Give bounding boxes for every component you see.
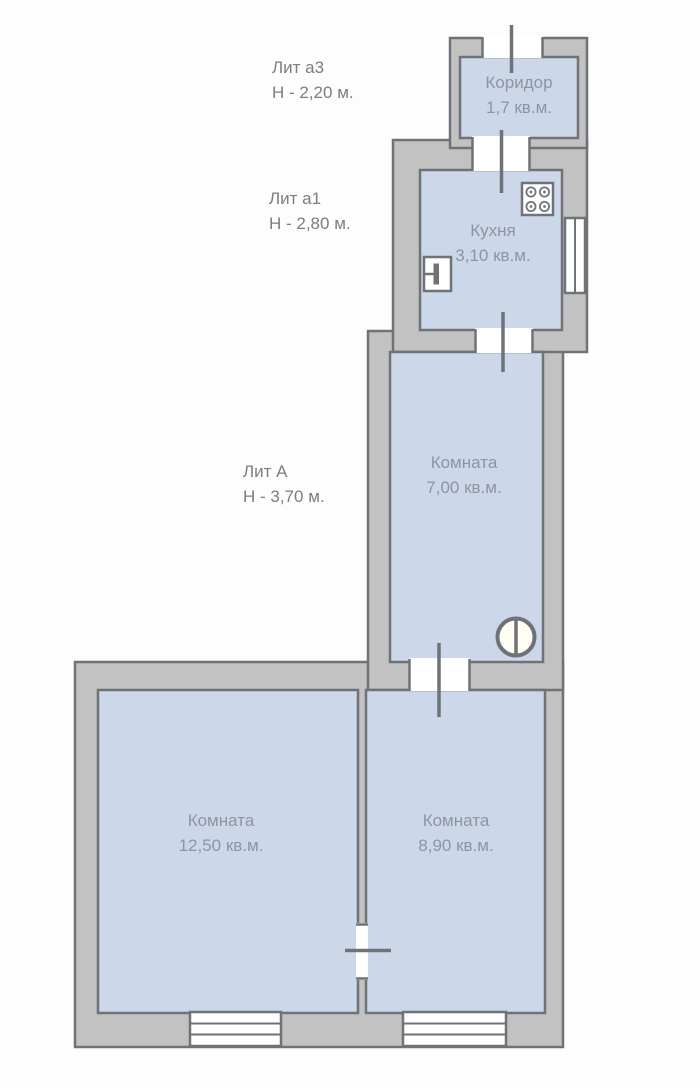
stove-icon: [522, 183, 553, 215]
room-name: Комната: [384, 450, 544, 475]
room-name: Коридор: [439, 70, 599, 95]
annotation-line: Лит а3: [272, 55, 354, 80]
annotation-lit-a3: Лит а3 Н - 2,20 м.: [272, 55, 354, 105]
window-symbol: [190, 1012, 281, 1046]
window-room125: [190, 1012, 281, 1046]
room-7-floor: [390, 352, 543, 662]
floor-plan: Лит а3 Н - 2,20 м. Лит а1 Н - 2,80 м. Ли…: [0, 0, 700, 1088]
annotation-line: Н - 3,70 м.: [243, 484, 325, 509]
label-room-7: Комната 7,00 кв.м.: [384, 450, 544, 500]
annotation-lit-A: Лит А Н - 3,70 м.: [243, 459, 325, 509]
annotation-line: Н - 2,80 м.: [269, 211, 351, 236]
window-room89: [403, 1012, 506, 1046]
annotation-line: Лит а1: [269, 186, 351, 211]
room-name: Комната: [376, 808, 536, 833]
room-name: Кухня: [413, 218, 573, 243]
window-symbol: [403, 1012, 506, 1046]
label-room-8-9: Комната 8,90 кв.м.: [376, 808, 536, 858]
room-area: 1,7 кв.м.: [439, 95, 599, 120]
washbasin-icon: [498, 618, 535, 656]
floor-plan-drawing: [0, 0, 700, 1088]
room-area: 3,10 кв.м.: [413, 243, 573, 268]
room-area: 7,00 кв.м.: [384, 475, 544, 500]
label-koridor: Коридор 1,7 кв.м.: [439, 70, 599, 120]
room-name: Комната: [141, 808, 301, 833]
annotation-line: Лит А: [243, 459, 325, 484]
label-kitchen: Кухня 3,10 кв.м.: [413, 218, 573, 268]
annotation-lit-a1: Лит а1 Н - 2,80 м.: [269, 186, 351, 236]
annotation-line: Н - 2,20 м.: [272, 80, 354, 105]
room-area: 8,90 кв.м.: [376, 833, 536, 858]
room-area: 12,50 кв.м.: [141, 833, 301, 858]
label-room-12-5: Комната 12,50 кв.м.: [141, 808, 301, 858]
